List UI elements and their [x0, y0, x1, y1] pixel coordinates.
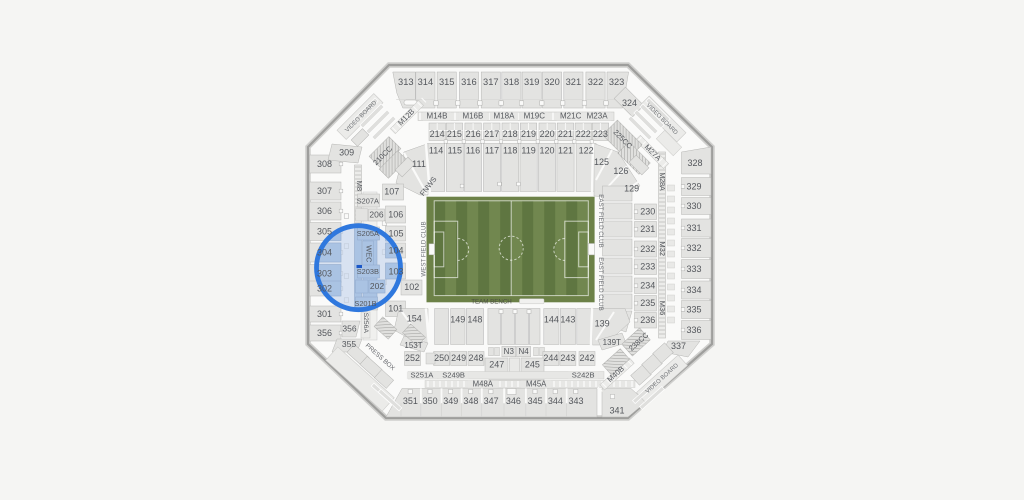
svg-text:M36: M36 [658, 301, 667, 316]
svg-text:144: 144 [544, 314, 559, 324]
svg-text:104: 104 [388, 245, 403, 255]
svg-text:348: 348 [463, 396, 478, 406]
svg-text:321: 321 [566, 77, 582, 87]
svg-text:218: 218 [503, 129, 518, 139]
svg-text:117: 117 [485, 145, 499, 155]
svg-text:309: 309 [339, 147, 354, 157]
svg-text:129: 129 [624, 184, 639, 194]
svg-text:M19C: M19C [524, 112, 546, 121]
svg-text:341: 341 [609, 405, 624, 415]
svg-text:WEST FIELD CLUB: WEST FIELD CLUB [420, 221, 427, 276]
svg-text:306: 306 [317, 206, 332, 216]
svg-text:249: 249 [451, 353, 466, 363]
svg-text:119: 119 [521, 145, 535, 155]
svg-text:M14B: M14B [427, 112, 448, 121]
svg-text:EAST FIELD CLUB: EAST FIELD CLUB [597, 194, 604, 248]
svg-text:252: 252 [405, 353, 420, 363]
svg-text:M21C: M21C [560, 112, 582, 121]
svg-text:322: 322 [588, 77, 604, 87]
svg-text:328: 328 [687, 158, 702, 168]
svg-text:243: 243 [560, 353, 575, 363]
svg-text:356: 356 [317, 328, 332, 338]
svg-text:347: 347 [484, 396, 499, 406]
svg-text:331: 331 [686, 223, 701, 233]
svg-text:303: 303 [317, 268, 332, 278]
svg-text:344: 344 [548, 396, 563, 406]
svg-text:222: 222 [576, 129, 591, 139]
svg-text:S242B: S242B [572, 371, 595, 380]
svg-text:126: 126 [613, 166, 628, 176]
svg-text:139T: 139T [603, 338, 621, 347]
svg-text:313: 313 [398, 77, 414, 87]
svg-text:202: 202 [370, 281, 384, 291]
svg-text:247: 247 [489, 360, 504, 370]
svg-text:107: 107 [384, 186, 399, 196]
svg-text:349: 349 [443, 396, 458, 406]
svg-text:214: 214 [430, 129, 445, 139]
svg-text:M23A: M23A [587, 112, 609, 121]
svg-text:S256A: S256A [362, 313, 369, 334]
svg-text:330: 330 [686, 201, 701, 211]
svg-text:101: 101 [388, 303, 403, 313]
svg-text:120: 120 [539, 145, 554, 155]
svg-text:M45A: M45A [526, 379, 547, 388]
svg-text:139: 139 [595, 319, 610, 329]
svg-text:235: 235 [640, 298, 655, 308]
svg-text:223: 223 [593, 129, 608, 139]
svg-text:350: 350 [423, 396, 438, 406]
svg-text:304: 304 [317, 247, 332, 257]
svg-text:333: 333 [686, 264, 701, 274]
svg-text:TEAM BENCH: TEAM BENCH [471, 299, 512, 306]
svg-text:102: 102 [404, 282, 419, 292]
svg-text:336: 336 [686, 325, 701, 335]
svg-text:245: 245 [525, 360, 540, 370]
svg-text:232: 232 [640, 244, 655, 254]
svg-text:248: 248 [468, 353, 483, 363]
svg-text:N4: N4 [518, 347, 529, 356]
svg-text:121: 121 [558, 145, 573, 155]
svg-text:332: 332 [686, 243, 701, 253]
svg-text:153T: 153T [404, 341, 422, 350]
svg-text:220: 220 [540, 129, 555, 139]
svg-text:118: 118 [503, 145, 517, 155]
svg-text:221: 221 [558, 129, 573, 139]
svg-text:315: 315 [439, 77, 455, 87]
svg-text:154: 154 [407, 313, 422, 323]
svg-text:206: 206 [369, 209, 383, 219]
svg-text:115: 115 [448, 145, 462, 155]
svg-text:219: 219 [521, 129, 536, 139]
svg-text:WEC: WEC [364, 245, 373, 263]
svg-text:103: 103 [388, 266, 403, 276]
svg-text:230: 230 [640, 207, 655, 217]
svg-text:S201B: S201B [354, 299, 376, 308]
svg-text:111: 111 [412, 159, 426, 169]
svg-text:351: 351 [403, 396, 418, 406]
svg-text:355: 355 [342, 339, 356, 349]
svg-text:307: 307 [317, 186, 332, 196]
svg-text:324: 324 [622, 98, 637, 108]
svg-text:S203B: S203B [357, 267, 379, 276]
svg-text:116: 116 [466, 145, 480, 155]
svg-text:125: 125 [594, 157, 609, 167]
svg-text:318: 318 [504, 77, 520, 87]
svg-text:356: 356 [342, 323, 356, 333]
svg-text:334: 334 [686, 285, 701, 295]
svg-text:244: 244 [543, 353, 558, 363]
svg-text:250: 250 [434, 353, 449, 363]
svg-text:335: 335 [686, 304, 701, 314]
svg-text:EAST FIELD CLUB: EAST FIELD CLUB [597, 257, 604, 311]
svg-text:S207A: S207A [357, 196, 379, 205]
svg-text:316: 316 [461, 77, 477, 87]
svg-text:346: 346 [506, 396, 521, 406]
svg-text:215: 215 [447, 129, 462, 139]
svg-text:231: 231 [640, 224, 655, 234]
svg-text:323: 323 [609, 77, 625, 87]
svg-text:122: 122 [579, 145, 594, 155]
svg-text:234: 234 [640, 281, 655, 291]
svg-text:302: 302 [317, 283, 332, 293]
svg-text:114: 114 [429, 145, 443, 155]
svg-text:M18A: M18A [494, 112, 516, 121]
svg-text:M32: M32 [658, 242, 667, 257]
svg-text:105: 105 [388, 228, 403, 238]
svg-text:N3: N3 [504, 347, 515, 356]
svg-text:236: 236 [640, 315, 655, 325]
svg-text:319: 319 [524, 77, 540, 87]
svg-text:317: 317 [483, 77, 499, 87]
svg-text:M8: M8 [355, 181, 364, 191]
svg-text:320: 320 [544, 77, 560, 87]
svg-text:329: 329 [686, 181, 701, 191]
svg-text:345: 345 [528, 396, 543, 406]
svg-text:337: 337 [671, 341, 686, 351]
svg-text:148: 148 [467, 314, 482, 324]
svg-text:343: 343 [568, 396, 583, 406]
svg-text:M48A: M48A [473, 379, 494, 388]
svg-text:314: 314 [418, 77, 434, 87]
svg-text:M28A: M28A [658, 172, 665, 191]
svg-text:242: 242 [579, 353, 594, 363]
svg-text:216: 216 [466, 129, 481, 139]
svg-text:S205A: S205A [357, 229, 379, 238]
svg-text:S249B: S249B [442, 371, 465, 380]
svg-text:M16B: M16B [462, 112, 483, 121]
svg-text:S251A: S251A [410, 371, 434, 380]
svg-text:233: 233 [640, 262, 655, 272]
svg-text:106: 106 [388, 209, 403, 219]
svg-text:308: 308 [317, 159, 332, 169]
svg-text:217: 217 [484, 129, 499, 139]
svg-text:149: 149 [450, 314, 465, 324]
svg-text:305: 305 [317, 226, 332, 236]
svg-text:143: 143 [560, 314, 575, 324]
svg-text:301: 301 [317, 309, 332, 319]
